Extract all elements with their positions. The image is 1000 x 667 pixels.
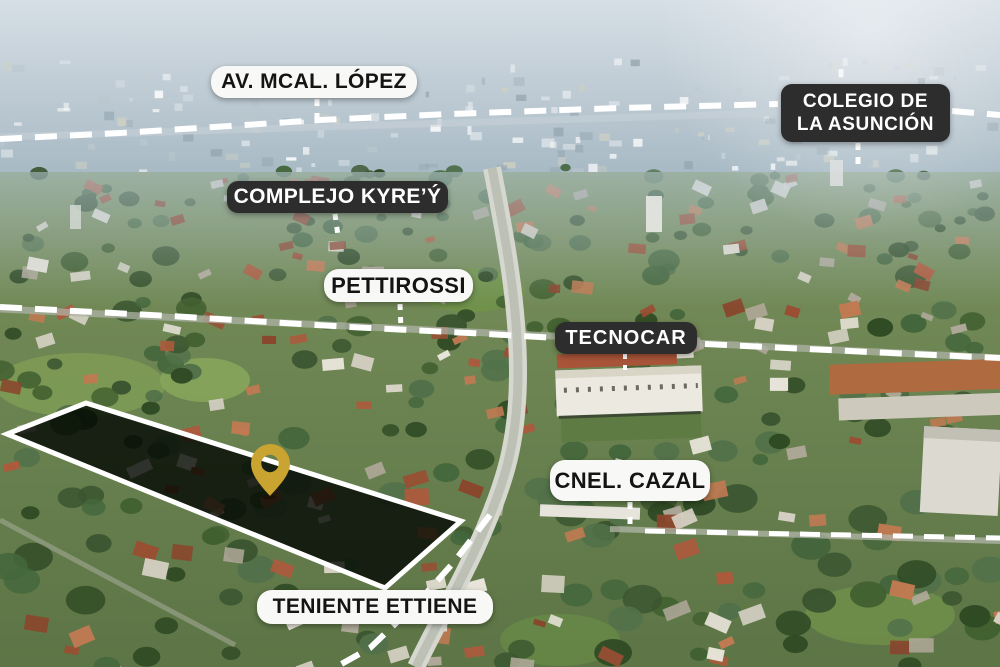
label-colegio-de-la-asuncion: COLEGIO DE LA ASUNCIÓN [781, 84, 950, 142]
label-teniente-ettiene: TENIENTE ETTIENE [257, 590, 493, 624]
large-white-building [920, 426, 1000, 516]
label-text: TENIENTE ETTIENE [273, 595, 478, 619]
label-text: AV. MCAL. LÓPEZ [221, 70, 407, 94]
label-tecnocar: TECNOCAR [555, 322, 697, 354]
label-text-line1: COLEGIO DE [803, 90, 928, 113]
label-pettirossi: PETTIROSSI [324, 269, 473, 302]
label-cnel-cazal: CNEL. CAZAL [550, 460, 710, 501]
label-complejo-kyrey: COMPLEJO KYRE’Ý [227, 181, 448, 213]
label-text: TECNOCAR [565, 327, 686, 350]
label-av-mcal-lopez: AV. MCAL. LÓPEZ [211, 66, 417, 98]
annotated-aerial-map: AV. MCAL. LÓPEZ COLEGIO DE LA ASUNCIÓN C… [0, 0, 1000, 667]
label-text: CNEL. CAZAL [554, 468, 705, 494]
label-text: COMPLEJO KYRE’Ý [234, 185, 442, 209]
high-rise-building [646, 196, 662, 232]
label-text-line2: LA ASUNCIÓN [797, 113, 934, 136]
label-text: PETTIROSSI [331, 273, 466, 299]
